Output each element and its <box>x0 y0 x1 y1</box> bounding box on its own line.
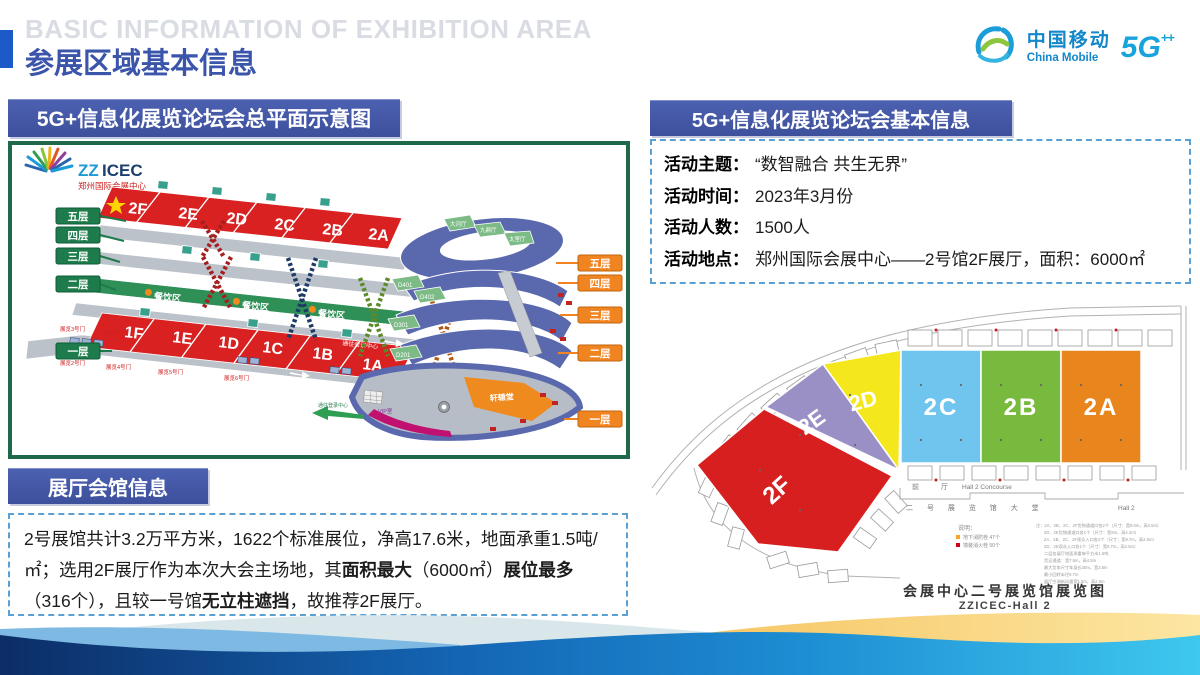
hall-2b: 2B <box>322 221 344 240</box>
info-row-time: 活动时间： 2023年3月份 <box>664 182 1177 214</box>
venue-overview-frame: ZZ ICEC 郑州国际会展中心 餐饮区 餐饮区 <box>8 141 630 459</box>
info-label: 活动地点： <box>664 245 749 270</box>
5g-plus-logo: 5G++ <box>1121 33 1174 63</box>
brand-name-zh: 中国移动 <box>1027 31 1111 52</box>
plan-legend: 说明： 地下消防栓 47个 墙装消火栓 50个 <box>956 524 1000 549</box>
svg-text:展览5号门: 展览5号门 <box>158 368 183 376</box>
svg-text:展览6号门: 展览6号门 <box>224 374 249 382</box>
info-label: 活动主题： <box>664 150 749 175</box>
hall-1b: 1B <box>312 345 334 364</box>
room-d301: D301 <box>394 323 409 329</box>
hall-2d: 2D <box>226 210 248 229</box>
svg-text:一层: 一层 <box>68 346 89 358</box>
room-daheting: 大河厅 <box>450 220 467 228</box>
svg-text:注：2A、2B、2C、2F货物通道口各2个（尺寸：宽9.0m: 注：2A、2B、2C、2F货物通道口各2个（尺寸：宽9.0m，高4.5m） <box>1036 522 1161 529</box>
svg-text:货运通道：宽7.5m，高4.5m: 货运通道：宽7.5m，高4.5m <box>1044 557 1097 564</box>
lobby-zh: 二 号 展 览 馆 大 堂 <box>906 503 1045 512</box>
title-accent-bar <box>0 30 13 68</box>
room-d401: D401 <box>398 283 413 289</box>
info-row-people: 活动人数： 1500人 <box>664 213 1177 245</box>
plan-notes: 注：2A、2B、2C、2F货物通道口各2个（尺寸：宽9.0m，高4.5m） 2D… <box>1036 522 1161 585</box>
info-value: “数智融合 共生无界” <box>755 150 907 175</box>
hall-2a: 2A <box>368 226 391 245</box>
zzicec-prefix: ZZ <box>78 161 99 180</box>
hall-2f: 2F <box>128 200 149 219</box>
brand-wordmark: 中国移动 China Mobile <box>1027 31 1111 65</box>
hall-info-banner: 展厅会馆信息 <box>8 468 208 504</box>
svg-text:一层: 一层 <box>590 414 611 426</box>
info-value: 2023年3月份 <box>755 182 853 207</box>
svg-text:五层: 五层 <box>590 258 611 270</box>
hall-2e: 2E <box>178 205 200 224</box>
slide: BASIC INFORMATION OF EXHIBITION AREA 参展区… <box>0 0 1200 675</box>
login-corridor-label: 通往登录中心 <box>318 402 348 409</box>
concourse-en: Hall 2 Concourse <box>962 484 1012 491</box>
info-row-theme: 活动主题： “数智融合 共生无界” <box>664 150 1177 182</box>
info-value: 郑州国际会展中心——2号馆2F展厅，面积：6000㎡ <box>755 245 1145 270</box>
legend-title: 说明： <box>958 524 976 532</box>
footer-wave-decoration <box>0 593 1200 675</box>
svg-text:五层: 五层 <box>68 211 89 223</box>
hall-2c: 2C <box>274 216 297 235</box>
hall-1e: 1E <box>172 329 194 348</box>
svg-text:2D、2E货物通道口各1个（尺寸：宽9m，高4.2m）: 2D、2E货物通道口各1个（尺寸：宽9m，高4.2m） <box>1044 529 1139 536</box>
info-label: 活动时间： <box>664 182 749 207</box>
room-taishiting: 太室厅 <box>509 235 526 243</box>
lobby-en: Hall 2 <box>1118 505 1135 512</box>
concourse-zh: 前 厅 <box>912 482 958 491</box>
info-value: 1500人 <box>755 213 810 238</box>
svg-text:展览4号门: 展览4号门 <box>106 363 131 371</box>
svg-text:2D、2E观众入口各1个（尺寸：宽9.7m，高2.5m）: 2D、2E观众入口各1个（尺寸：宽9.7m，高2.5m） <box>1044 543 1138 550</box>
svg-text:三层: 三层 <box>590 310 611 322</box>
svg-text:二层: 二层 <box>590 348 611 360</box>
concourse-lobby: 前 厅 Hall 2 Concourse 二 号 展 览 馆 大 堂 Hall … <box>900 482 1184 512</box>
hall-1d: 1D <box>218 334 240 353</box>
room-d201: D201 <box>396 353 411 359</box>
svg-text:2A、2B、2C、2F观众入口各2个（尺寸：宽9.7m，高2: 2A、2B、2C、2F观众入口各2个（尺寸：宽9.7m，高2.5m） <box>1044 536 1157 543</box>
hall-sections <box>697 350 1141 552</box>
svg-text:展览2号门: 展览2号门 <box>60 359 85 367</box>
zzicec-logo: ZZ ICEC 郑州国际会展中心 <box>26 148 147 191</box>
svg-text:二层: 二层 <box>68 279 89 291</box>
brand-logo: 中国移动 China Mobile 5G++ <box>971 22 1174 73</box>
slide-title-zh: 参展区域基本信息 <box>25 40 257 82</box>
zzicec-rest: ICEC <box>102 161 143 180</box>
svg-text:2A: 2A <box>1084 394 1119 421</box>
hall2-floor-plan: 2F 2E 2D 2C 2B 2A 前 厅 Hall 2 Concourse 二… <box>650 300 1190 612</box>
svg-text:四层: 四层 <box>590 278 611 290</box>
info-label: 活动人数： <box>664 213 749 238</box>
china-mobile-icon <box>971 22 1017 73</box>
svg-text:最大货车尺寸车身长20m，宽3.5m: 最大货车尺寸车身长20m，宽3.5m <box>1044 564 1108 571</box>
room-vip: VIP室 <box>378 407 393 415</box>
svg-text:二层各展厅地面承重每平方米1.5吨: 二层各展厅地面承重每平方米1.5吨 <box>1044 550 1109 557</box>
svg-text:最小回转半径9.7m: 最小回转半径9.7m <box>1044 571 1079 578</box>
basic-info-box: 活动主题： “数智融合 共生无界” 活动时间： 2023年3月份 活动人数： 1… <box>650 139 1191 284</box>
overview-banner: 5G+信息化展览论坛会总平面示意图 <box>8 99 400 137</box>
svg-text:三层: 三层 <box>68 251 89 263</box>
svg-text:展览3号门: 展览3号门 <box>60 325 85 333</box>
legend-item: 墙装消火栓 50个 <box>963 542 1000 549</box>
brand-name-en: China Mobile <box>1027 52 1111 65</box>
svg-text:2C: 2C <box>924 394 959 421</box>
room-d402: D402 <box>420 295 435 301</box>
room-jiudingting: 九鼎厅 <box>480 226 497 234</box>
basic-info-banner: 5G+信息化展览论坛会基本信息 <box>650 100 1012 136</box>
legend-item: 地下消防栓 47个 <box>963 534 1000 541</box>
room-xuanyuantang: 轩辕堂 <box>489 391 514 403</box>
venue-overview-diagram: ZZ ICEC 郑州国际会展中心 餐饮区 餐饮区 <box>12 145 626 455</box>
hall-1c: 1C <box>262 339 285 358</box>
svg-text:展览5号门: 展览5号门 <box>102 329 127 337</box>
info-row-place: 活动地点： 郑州国际会展中心——2号馆2F展厅，面积：6000㎡ <box>664 245 1177 277</box>
svg-text:四层: 四层 <box>68 230 89 242</box>
svg-text:2B: 2B <box>1004 394 1039 421</box>
